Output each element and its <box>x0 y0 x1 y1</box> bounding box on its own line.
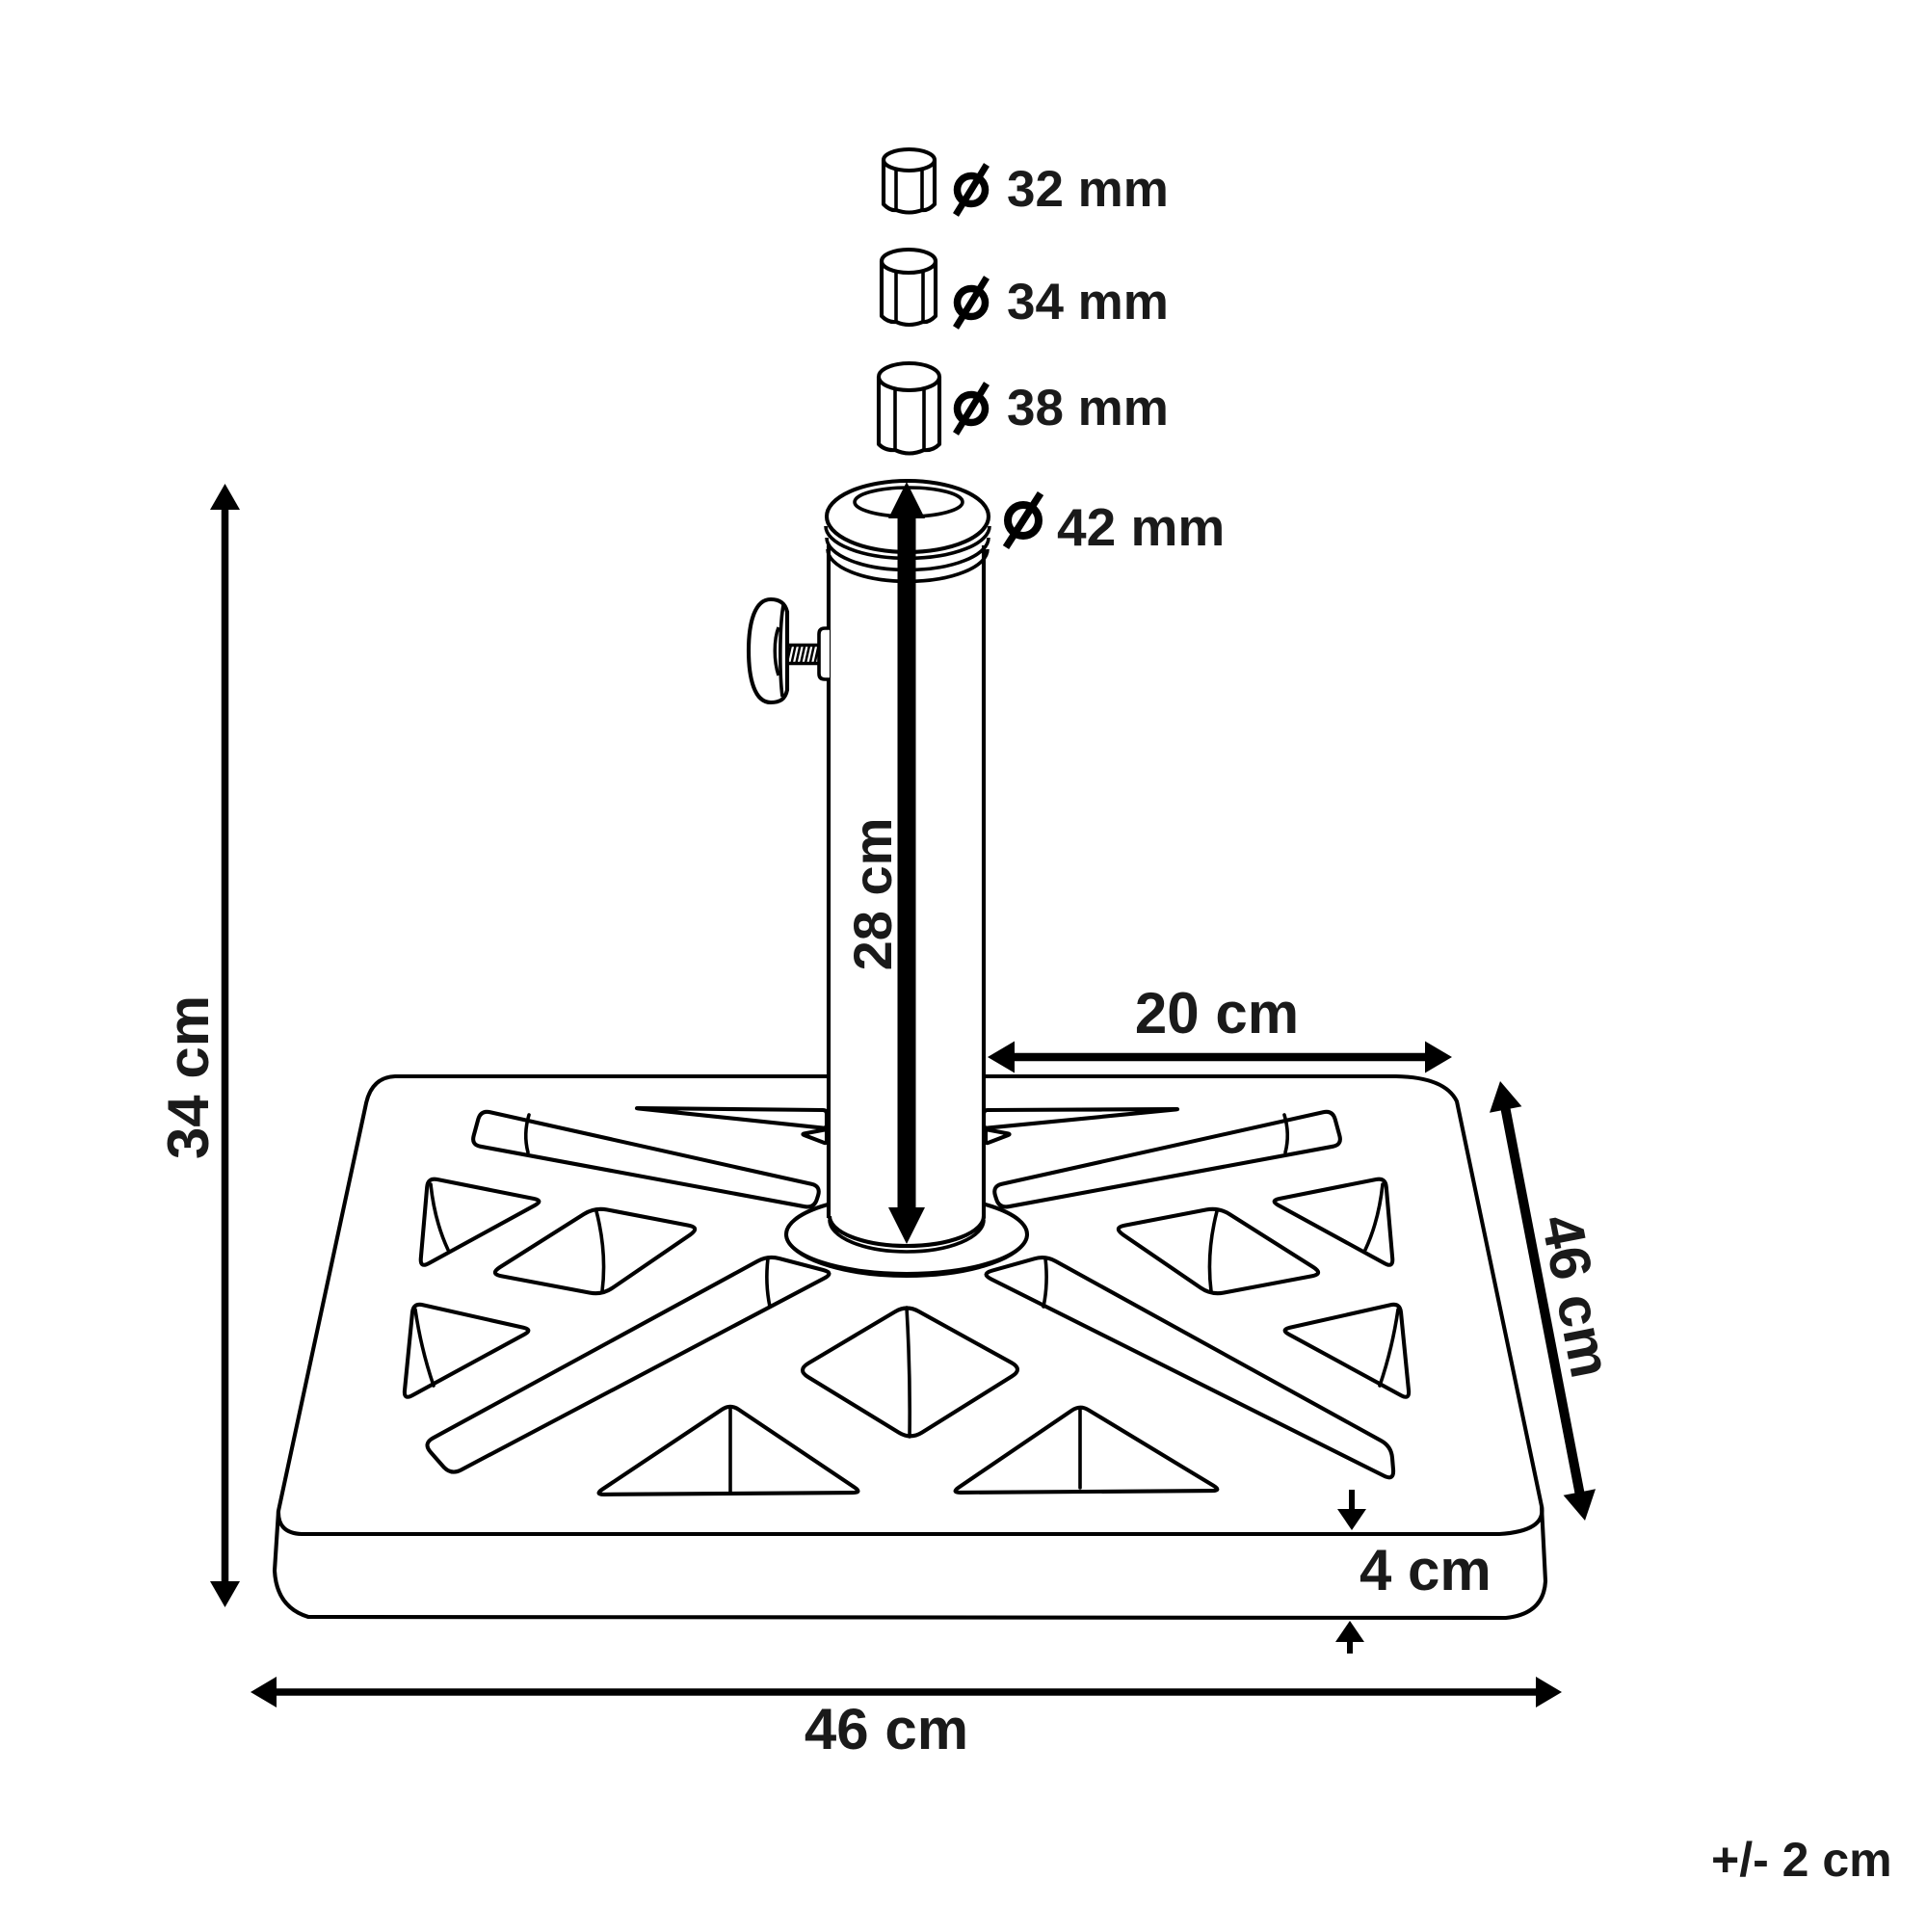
svg-text:46 cm: 46 cm <box>805 1697 968 1761</box>
svg-text:4 cm: 4 cm <box>1359 1538 1491 1602</box>
svg-text:20 cm: 20 cm <box>1135 981 1299 1045</box>
svg-text:38 mm: 38 mm <box>1007 380 1169 437</box>
svg-text:34 mm: 34 mm <box>1007 274 1169 331</box>
svg-text:32 mm: 32 mm <box>1007 161 1169 218</box>
svg-text:34 cm: 34 cm <box>156 995 221 1159</box>
svg-text:+/- 2 cm: +/- 2 cm <box>1711 1833 1892 1887</box>
svg-text:42 mm: 42 mm <box>1057 497 1225 557</box>
svg-text:28 cm: 28 cm <box>842 818 903 971</box>
